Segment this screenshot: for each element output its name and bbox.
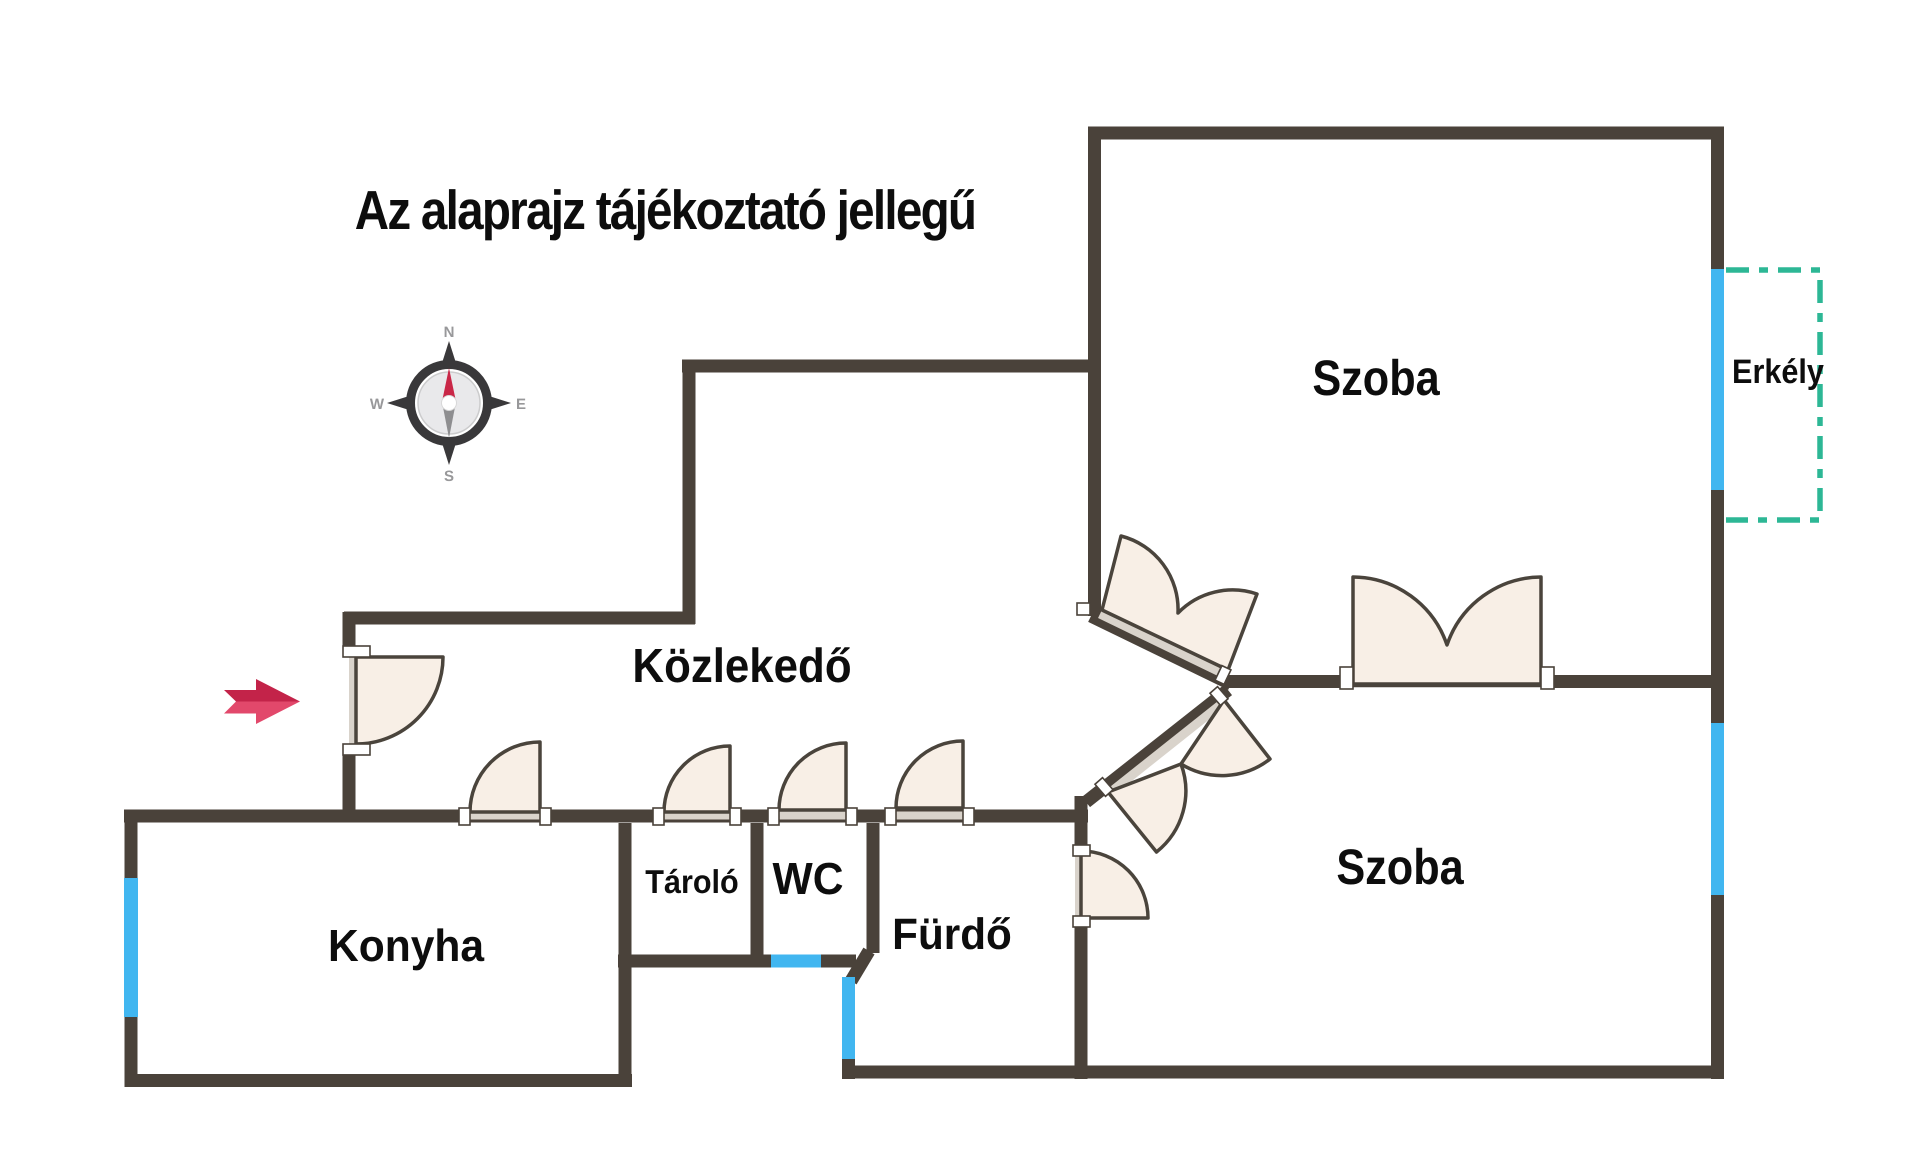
svg-text:Szoba: Szoba: [1336, 839, 1464, 895]
svg-text:Tároló: Tároló: [645, 863, 738, 900]
svg-text:Közlekedő: Közlekedő: [632, 640, 851, 693]
svg-text:Az alaprajz tájékoztató jelleg: Az alaprajz tájékoztató jellegű: [355, 179, 976, 241]
svg-text:Erkély: Erkély: [1732, 353, 1824, 391]
svg-text:N: N: [444, 324, 455, 341]
svg-text:Fürdő: Fürdő: [892, 910, 1012, 959]
svg-text:Konyha: Konyha: [328, 920, 485, 971]
svg-text:E: E: [516, 396, 526, 413]
svg-text:Szoba: Szoba: [1312, 350, 1440, 406]
svg-text:S: S: [444, 468, 454, 485]
svg-text:W: W: [370, 396, 385, 413]
svg-text:WC: WC: [772, 853, 843, 904]
